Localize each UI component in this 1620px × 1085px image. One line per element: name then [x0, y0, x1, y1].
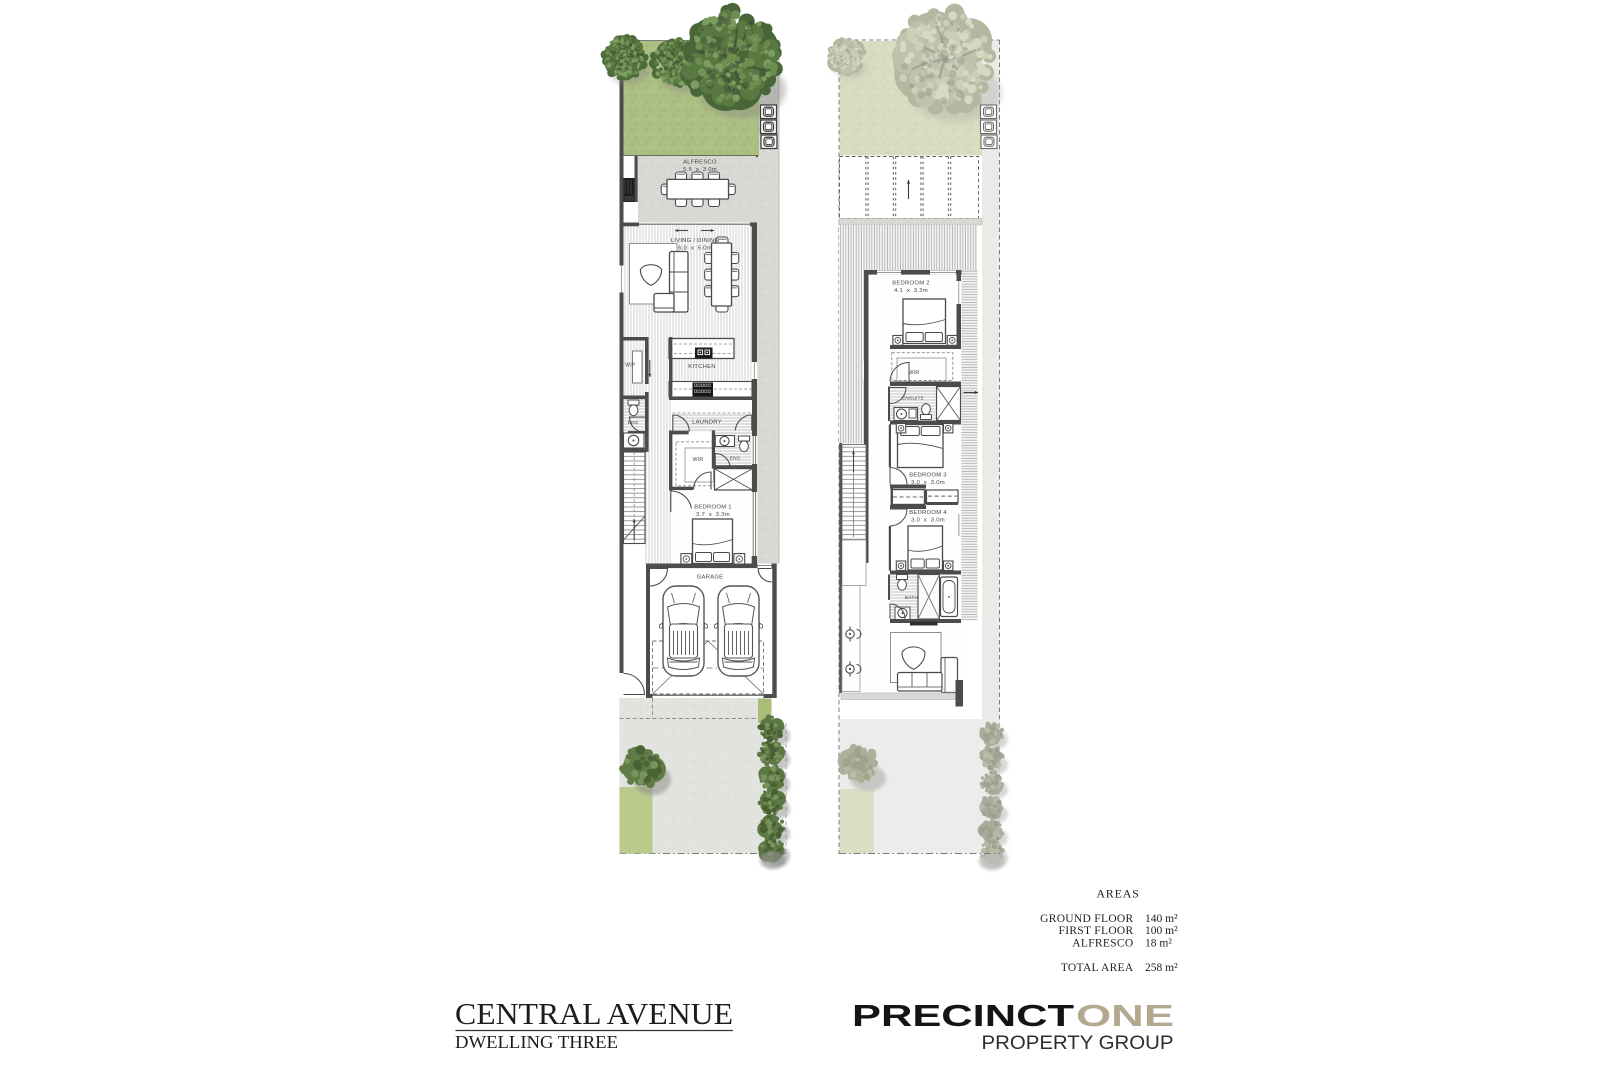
svg-text:TOTAL AREA: TOTAL AREA	[1061, 962, 1134, 974]
svg-text:18 m²: 18 m²	[1145, 938, 1172, 950]
svg-text:BATH: BATH	[905, 595, 919, 601]
svg-text:PRECINCT: PRECINCT	[852, 998, 1074, 1033]
svg-text:ALFRESCO: ALFRESCO	[683, 160, 717, 166]
svg-text:BEDROOM 3: BEDROOM 3	[909, 473, 947, 479]
svg-text:PROPERTY GROUP: PROPERTY GROUP	[982, 1032, 1174, 1054]
svg-text:ENS: ENS	[628, 420, 638, 426]
svg-text:BEDROOM 4: BEDROOM 4	[909, 510, 947, 516]
svg-text:GROUND FLOOR: GROUND FLOOR	[1040, 913, 1133, 925]
svg-text:WIR: WIR	[909, 370, 920, 376]
svg-text:3.0 x 3.0m: 3.0 x 3.0m	[911, 518, 945, 524]
svg-text:ALFRESCO: ALFRESCO	[1072, 938, 1133, 950]
svg-text:WIR: WIR	[693, 457, 704, 463]
svg-text:258 m²: 258 m²	[1145, 962, 1178, 974]
svg-text:BEDROOM 1: BEDROOM 1	[694, 505, 732, 511]
svg-text:140 m²: 140 m²	[1145, 913, 1178, 925]
svg-text:ENSUITE: ENSUITE	[902, 396, 924, 402]
svg-text:ONE: ONE	[1076, 998, 1174, 1033]
svg-text:KITCHEN: KITCHEN	[688, 364, 716, 370]
svg-text:FIRST FLOOR: FIRST FLOOR	[1059, 925, 1134, 937]
svg-text:6.0 x 5.0m: 6.0 x 5.0m	[678, 246, 712, 252]
svg-text:BEDROOM 2: BEDROOM 2	[892, 281, 930, 287]
svg-text:CENTRAL AVENUE: CENTRAL AVENUE	[455, 996, 733, 1031]
svg-text:3.7 x 3.3m: 3.7 x 3.3m	[696, 512, 730, 518]
svg-text:AREAS: AREAS	[1096, 887, 1139, 901]
svg-text:GARAGE: GARAGE	[697, 575, 724, 581]
svg-text:4.1 x 3.2m: 4.1 x 3.2m	[894, 288, 928, 294]
svg-text:LIVING / DINING: LIVING / DINING	[671, 238, 720, 244]
svg-text:5.5 x 3.0m: 5.5 x 3.0m	[683, 167, 717, 173]
svg-text:ENS: ENS	[730, 456, 740, 462]
svg-text:100 m²: 100 m²	[1145, 925, 1178, 937]
svg-text:DWELLING THREE: DWELLING THREE	[455, 1032, 618, 1052]
svg-text:LAUNDRY: LAUNDRY	[692, 420, 722, 426]
svg-text:WIP: WIP	[625, 363, 636, 369]
